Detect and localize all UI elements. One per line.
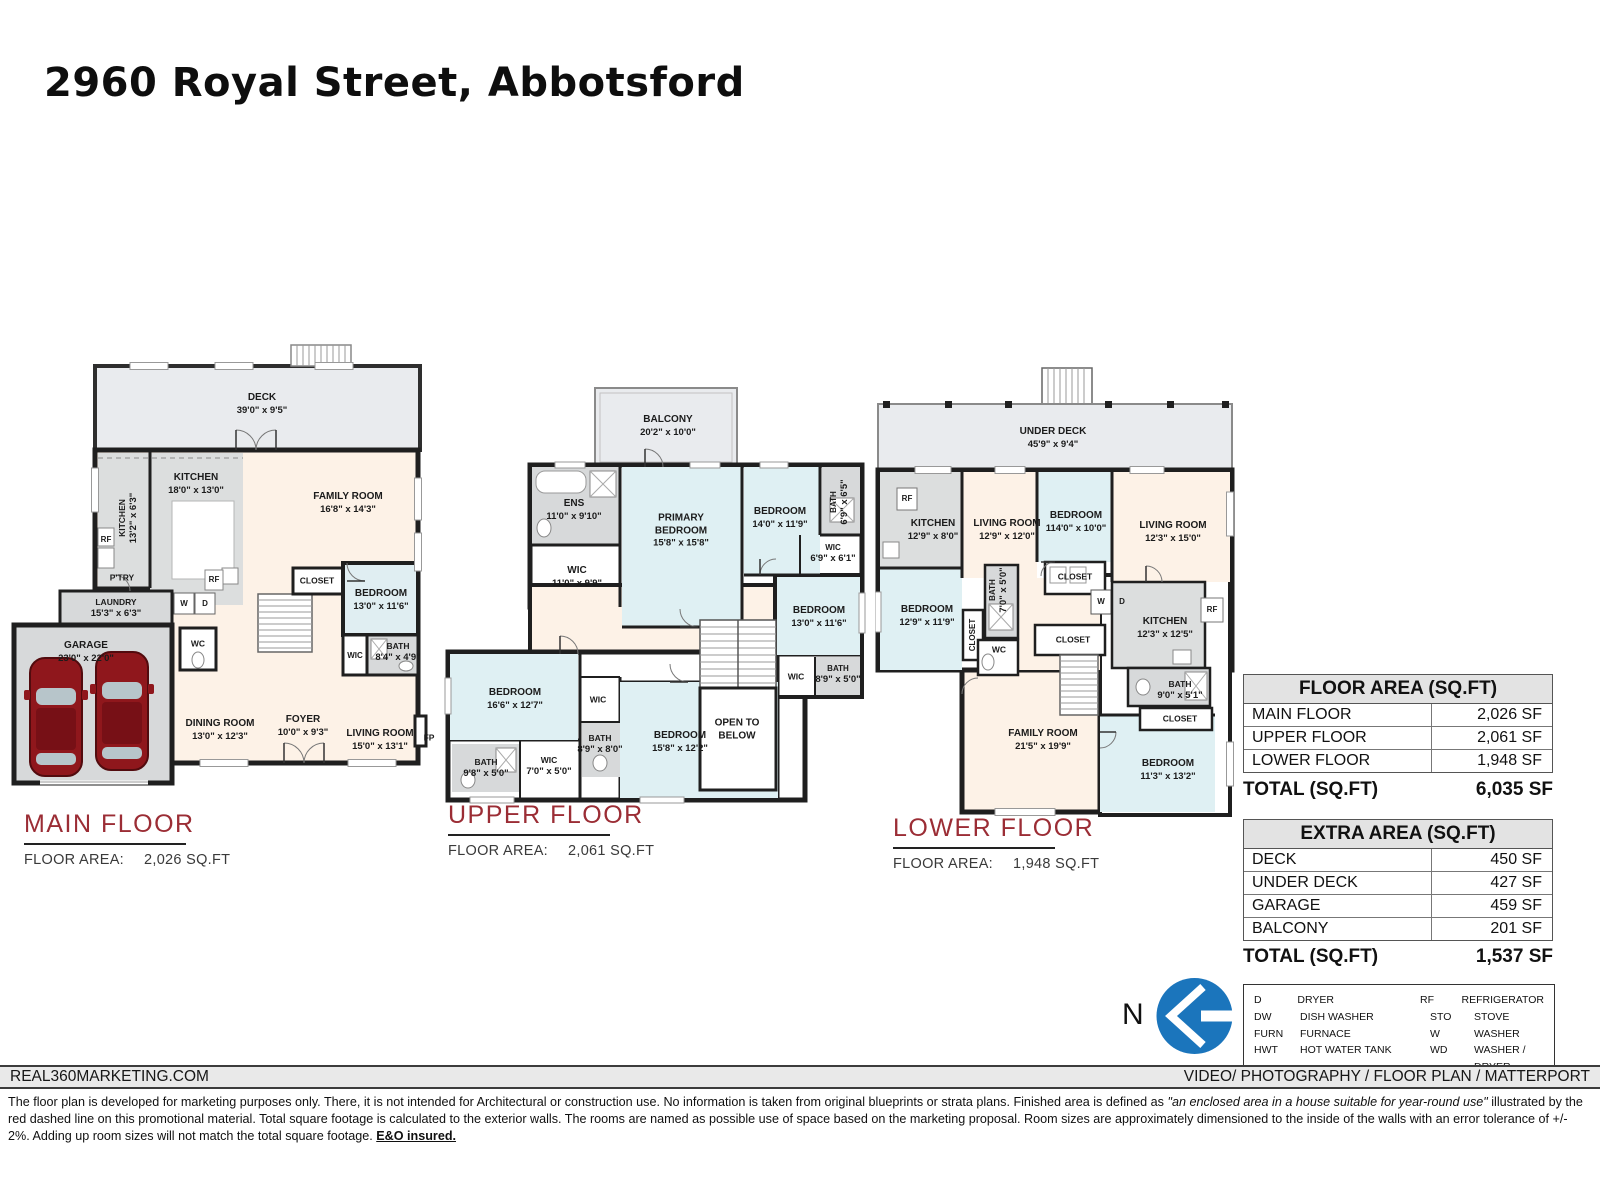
open-to-below-label: OPEN TO BELOW [705,718,769,743]
room-label-family-room: FAMILY ROOM16'8" x 14'3" [313,491,382,515]
north-label: N [1122,998,1144,1032]
room-label-bedroom113: BEDROOM11'3" x 13'2" [1140,758,1195,782]
floor-area-total: TOTAL (SQ.FT)6,035 SF [1243,779,1553,801]
room-label-bedroom13: BEDROOM13'0" x 11'6" [791,605,846,629]
bath-vert-label: BATH7'0" x 5'0" [988,567,1010,612]
upper-floor-plan: BALCONY20'2" x 10'0" ENS11'0" x 9'10" PR… [440,378,870,808]
room-label-bedroom114: BEDROOM114'0" x 10'0" [1046,510,1107,534]
room-label-living: LIVING ROOM15'0" x 13'1" [346,728,413,752]
main-floor-title: MAIN FLOOR FLOOR AREA:2,026 SQ.FT [24,810,230,868]
main-floor-plan: DECK39'0" x 9'5" KITCHEN18'0" x 13'0" KI… [10,338,440,798]
wc-label: WC [992,645,1006,656]
footer-brand: REAL360MARKETING.COM [10,1068,209,1086]
disclaimer: The floor plan is developed for marketin… [8,1094,1592,1145]
room-label-dining: DINING ROOM13'0" x 12'3" [186,718,255,742]
title-rule [24,843,186,845]
title-rule [893,847,1055,849]
floor-area-table: FLOOR AREA (SQ.FT) MAIN FLOOR2,026 SF UP… [1243,674,1553,773]
room-label-bedroom14: BEDROOM14'0" x 11'9" [752,506,807,530]
table-row: MAIN FLOOR2,026 SF [1244,704,1552,727]
room-label-garage: GARAGE23'0" x 22'0" [58,640,114,664]
legend-row: DDRYERRFREFRIGERATOR [1254,992,1544,1009]
room-label-bath-vert: BATH6'9" x 6'5" [829,479,851,524]
room-label-wic: WIC [347,651,363,661]
room-label-bath98: BATH9'8" x 5'0" [463,757,508,780]
room-label-rf2: RF [209,575,220,585]
room-label-pantry: P'TRY [110,573,134,584]
room-label-kitchen2: KITCHEN12'3" x 12'5" [1137,616,1193,640]
floor-area-table-header: FLOOR AREA (SQ.FT) [1244,675,1552,704]
room-label-closet: CLOSET [300,576,334,587]
legend-row: DWDISH WASHERSTOSTOVE [1254,1009,1544,1026]
footer-services: VIDEO/ PHOTOGRAPHY / FLOOR PLAN / MATTER… [1184,1068,1590,1086]
title-rule [448,834,610,836]
room-label-deck: DECK39'0" x 9'5" [237,392,288,416]
table-row: UNDER DECK427 SF [1244,872,1552,895]
room-label-ens: ENS11'0" x 9'10" [546,498,601,522]
room-label-primary-bedroom: PRIMARY BEDROOM15'8" x 15'8" [639,513,723,550]
room-label-wic110: WIC11'0" x 9'9" [552,565,602,589]
closet-vert-label: CLOSET [968,619,978,651]
room-label-rf: RF [101,535,112,545]
room-label-foyer: FOYER10'0" x 9'3" [278,714,329,738]
lower-floor-area-value: 1,948 SQ.FT [1013,856,1099,872]
room-label-kitchen: KITCHEN18'0" x 13'0" [168,472,224,496]
car [24,658,88,776]
table-row: LOWER FLOOR1,948 SF [1244,750,1552,772]
room-label-living2: LIVING ROOM12'3" x 15'0" [1139,520,1206,544]
car [90,652,154,770]
room-label-bath: BATH8'4" x 4'9" [375,641,420,664]
room-label-bedroom15: BEDROOM15'8" x 12'2" [652,730,708,754]
room-label-bath-right: BATH8'9" x 5'0" [815,664,860,686]
table-row: DECK450 SF [1244,849,1552,872]
room-label-bedroom: BEDROOM13'0" x 11'6" [353,588,408,612]
rf2-label: RF [1207,605,1218,615]
room-label-under-deck: UNDER DECK45'9" x 9'4" [1020,426,1087,450]
room-label-wc: WC [191,639,205,650]
extra-area-total: TOTAL (SQ.FT)1,537 SF [1243,946,1553,968]
room-label-family: FAMILY ROOM21'5" x 19'9" [1008,728,1077,752]
bath2-label: BATH9'0" x 5'1" [1157,679,1202,702]
table-row: GARAGE459 SF [1244,895,1552,918]
room-label-rf: RF [902,494,913,504]
fireplace-label: FP [424,733,435,744]
room-label-bedroom16: BEDROOM16'6" x 12'7" [487,687,543,711]
room-label-bath89: BATH8'9" x 8'0" [577,733,622,756]
room-label-living1: LIVING ROOM12'9" x 12'0" [973,518,1040,542]
dryer-label: D [1119,597,1125,607]
upper-floor-area-value: 2,061 SQ.FT [568,843,654,859]
table-row: UPPER FLOOR2,061 SF [1244,727,1552,750]
upper-floor-title: UPPER FLOOR FLOOR AREA:2,061 SQ.FT [448,801,654,859]
closet-mid-label: CLOSET [1058,572,1092,583]
room-label-wic-small: WIC [590,695,607,706]
room-label-wic70: WIC7'0" x 5'0" [526,755,571,778]
lower-floor-title: LOWER FLOOR FLOOR AREA:1,948 SQ.FT [893,814,1099,872]
footer-bar: REAL360MARKETING.COM VIDEO/ PHOTOGRAPHY … [0,1065,1600,1089]
closet-mid2-label: CLOSET [1056,635,1090,646]
page-title: 2960 Royal Street, Abbotsford [44,60,745,106]
washer-label: W [180,599,188,609]
north-compass-icon [1147,976,1242,1056]
room-label-wic69: WIC6'9" x 6'1" [810,543,855,565]
legend-row: FURNFURNACEWWASHER [1254,1026,1544,1043]
table-row: BALCONY201 SF [1244,918,1552,940]
room-label-wic-right: WIC [788,672,805,683]
main-floor-area-value: 2,026 SQ.FT [144,852,230,868]
room-label-kitchen1: KITCHEN12'9" x 8'0" [908,518,959,542]
extra-area-table: EXTRA AREA (SQ.FT) DECK450 SF UNDER DECK… [1243,819,1553,941]
closet-right-label: CLOSET [1163,714,1197,725]
extra-area-table-header: EXTRA AREA (SQ.FT) [1244,820,1552,849]
dryer-label: D [202,599,208,609]
room-label-bedroom129: BEDROOM12'9" x 11'9" [899,604,954,628]
room-label-balcony: BALCONY20'2" x 10'0" [640,414,696,438]
lower-floor-plan: UNDER DECK45'9" x 9'4" RF KITCHEN12'9" x… [875,362,1240,817]
washer-label: W [1097,597,1105,607]
room-label-laundry: LAUNDRY15'3" x 6'3" [91,597,142,620]
room-label-kitchen2: KITCHEN13'2" x 6'3" [117,493,140,544]
